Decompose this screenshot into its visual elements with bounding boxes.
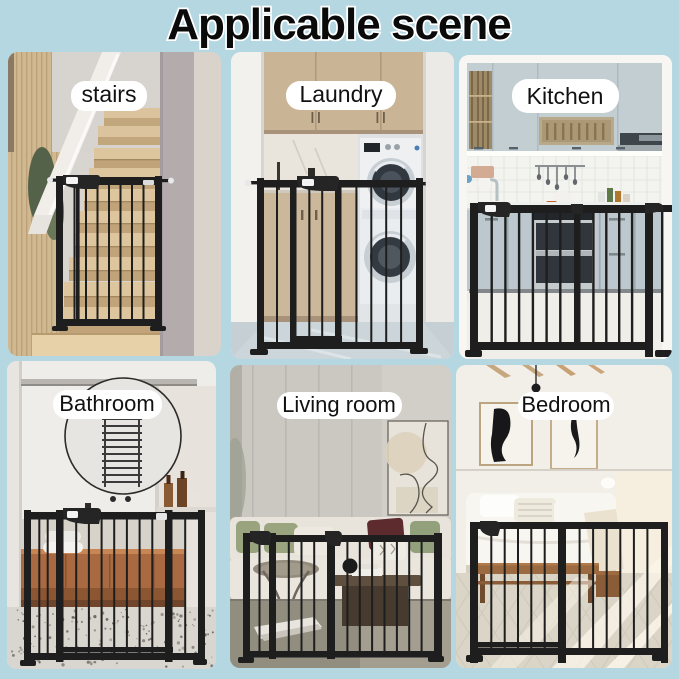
svg-text:Laundry: Laundry [299, 81, 383, 107]
svg-text:Bathroom: Bathroom [59, 391, 154, 416]
svg-text:Kitchen: Kitchen [527, 83, 604, 109]
svg-text:Bedroom: Bedroom [521, 392, 610, 417]
svg-text:Applicable scene: Applicable scene [167, 0, 510, 49]
svg-text:Living room: Living room [282, 392, 396, 417]
svg-text:stairs: stairs [82, 81, 137, 107]
